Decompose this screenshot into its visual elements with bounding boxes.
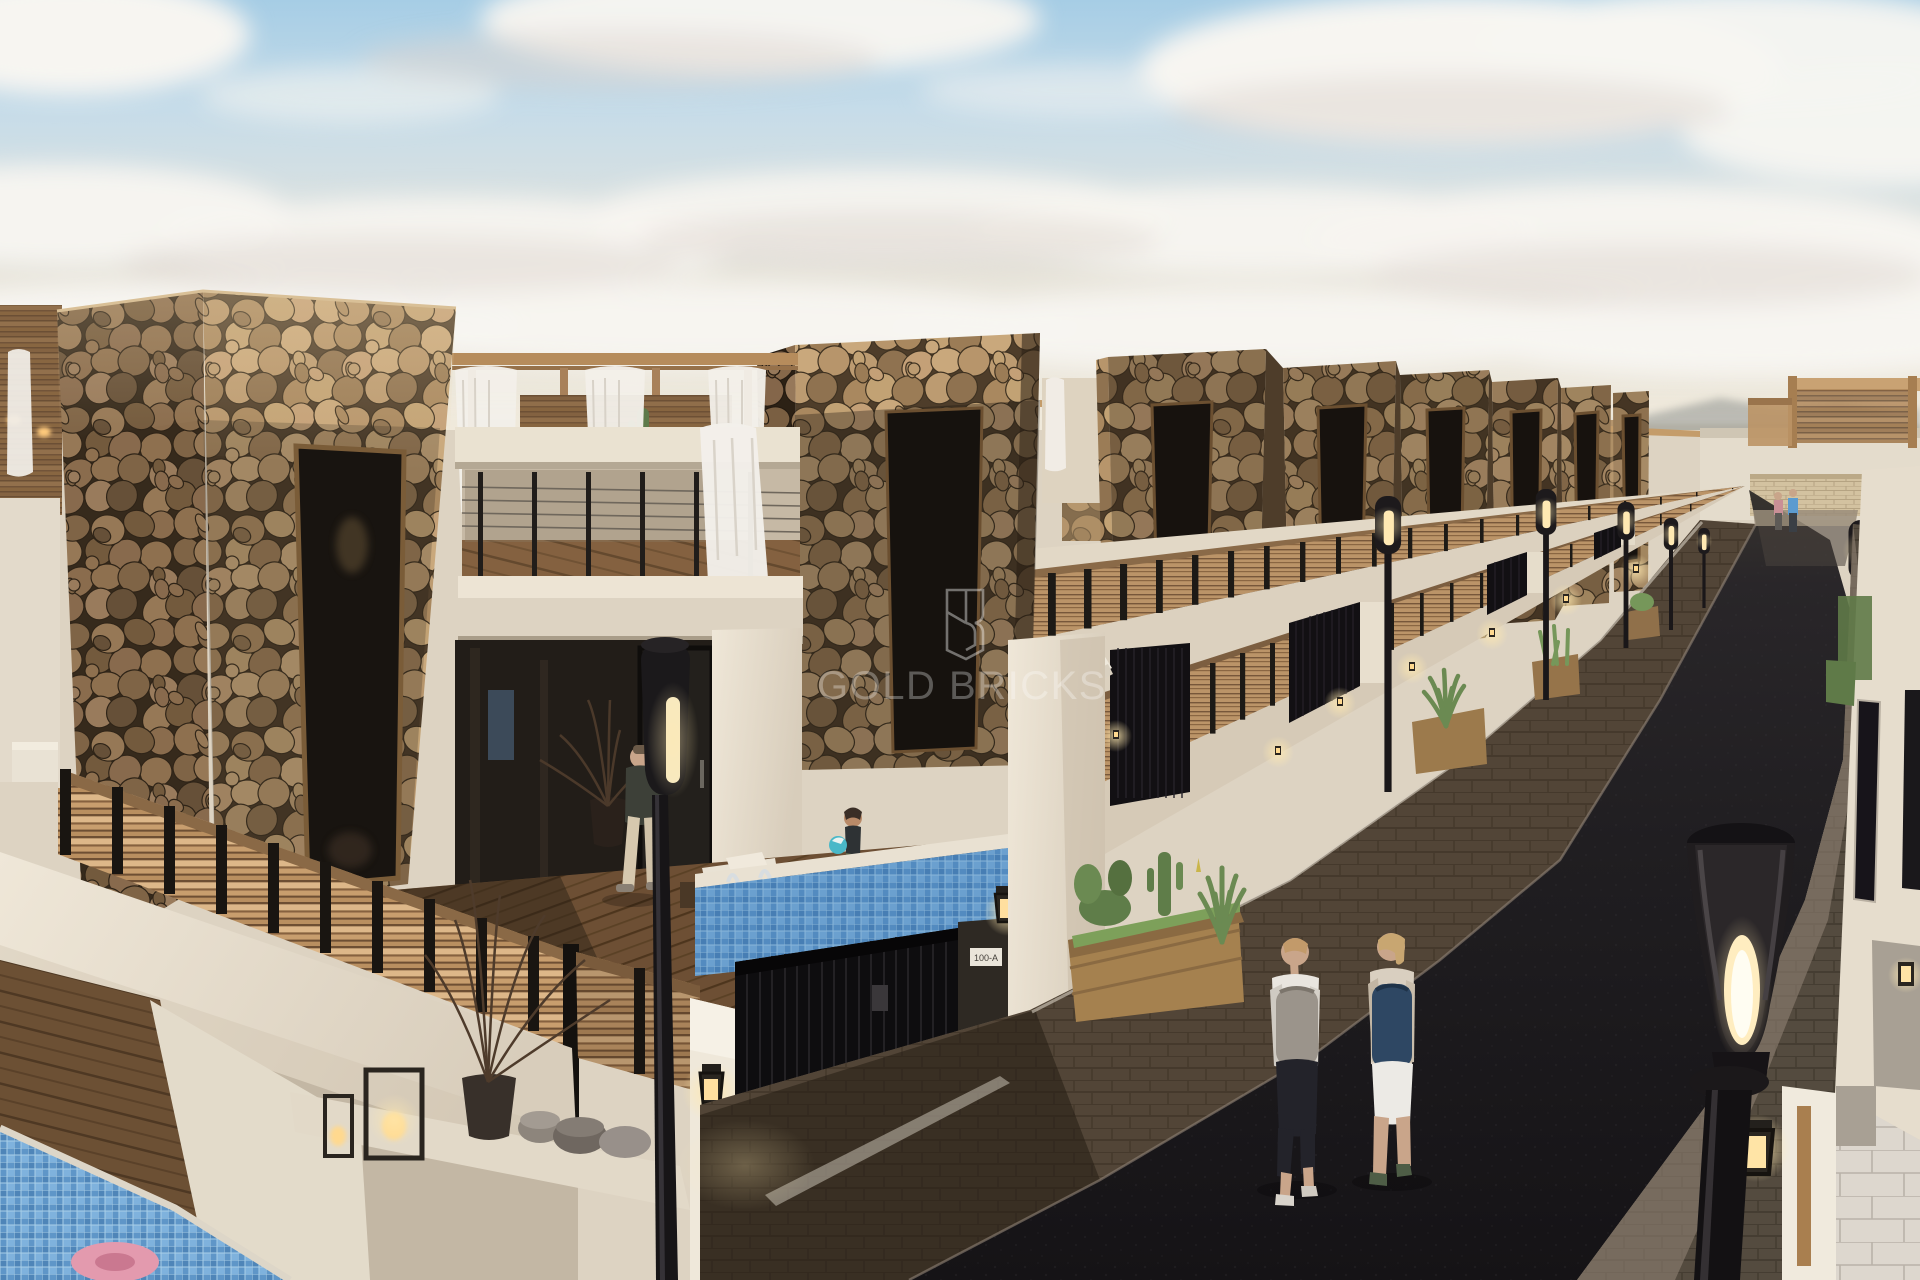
svg-text:100-A: 100-A — [974, 953, 998, 963]
svg-text:GOLD BRICKS: GOLD BRICKS — [817, 664, 1107, 708]
